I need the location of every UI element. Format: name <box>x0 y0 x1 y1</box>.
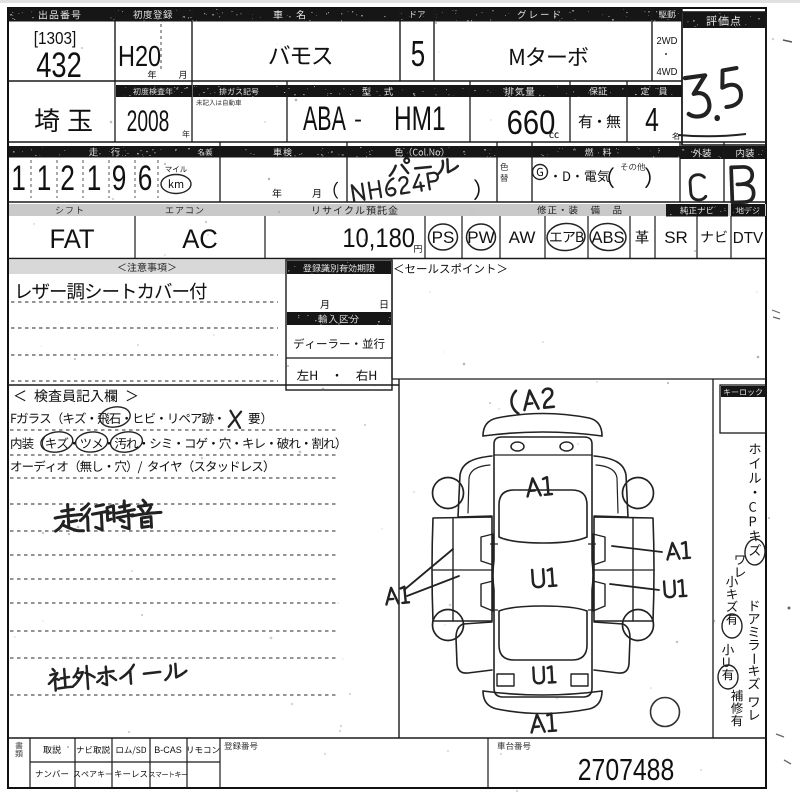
svg-text:H20: H20 <box>118 40 161 73</box>
svg-text:432: 432 <box>36 46 82 85</box>
svg-text:-: - <box>354 106 362 133</box>
svg-text:1: 1 <box>11 158 26 198</box>
svg-text:660: 660 <box>507 103 556 142</box>
svg-text:2WD: 2WD <box>657 36 678 48</box>
svg-text:FAT: FAT <box>49 223 94 254</box>
svg-text:4WD: 4WD <box>657 67 678 79</box>
svg-text:HM1: HM1 <box>394 100 446 138</box>
svg-text:PS: PS <box>432 228 455 247</box>
svg-text:2008: 2008 <box>127 105 170 138</box>
svg-text:PW: PW <box>467 228 494 247</box>
svg-text:AC: AC <box>182 223 218 254</box>
svg-text:1: 1 <box>37 158 52 198</box>
svg-text:6: 6 <box>138 158 153 198</box>
svg-text:10,180: 10,180 <box>342 224 415 254</box>
svg-text:4: 4 <box>645 103 659 139</box>
svg-text:2707488: 2707488 <box>578 752 675 786</box>
svg-text:B-CAS: B-CAS <box>154 745 182 755</box>
svg-text:1: 1 <box>87 158 102 198</box>
svg-text:AW: AW <box>509 228 536 247</box>
svg-text:SR: SR <box>664 228 688 247</box>
svg-text:ABA: ABA <box>303 100 346 138</box>
svg-text:2: 2 <box>60 158 75 198</box>
svg-text:ABS: ABS <box>591 229 624 247</box>
svg-text:DTV: DTV <box>733 230 764 247</box>
svg-text:5: 5 <box>411 34 425 74</box>
svg-text:9: 9 <box>112 158 127 198</box>
